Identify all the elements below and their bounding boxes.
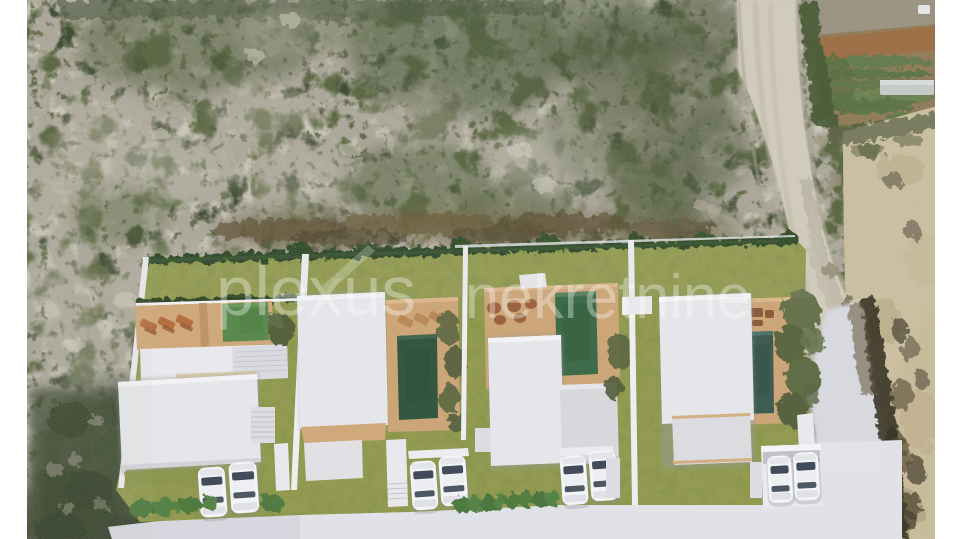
svg-text:plexus: plexus <box>216 252 416 330</box>
svg-text:nekretnine: nekretnine <box>465 263 751 332</box>
